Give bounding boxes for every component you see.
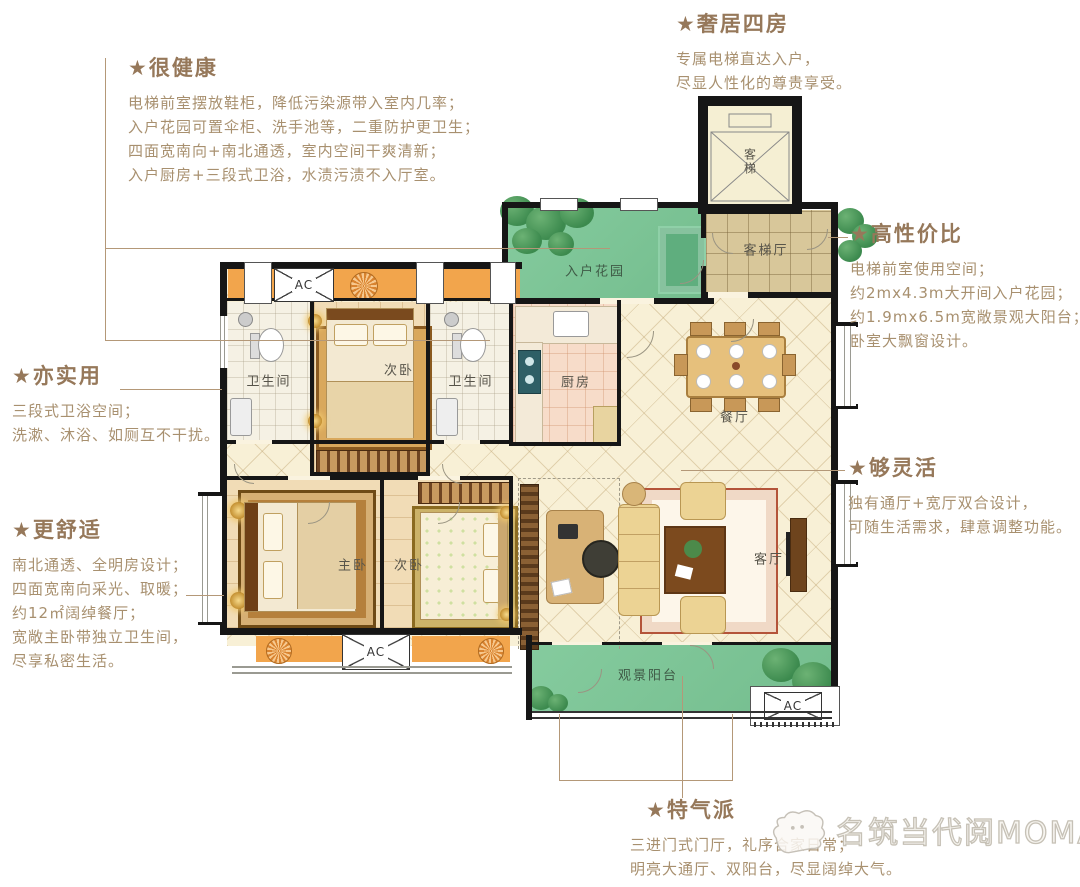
desk-chair: [582, 540, 620, 578]
dining-table: [686, 336, 786, 398]
leader-line: [828, 237, 848, 238]
laptop-icon: [558, 524, 578, 539]
wall-segment: [526, 635, 532, 720]
room-label-bathroom-ne: 卫生间: [448, 371, 493, 390]
room-label-balcony: 观景阳台: [618, 665, 678, 684]
annotation-flexible: ★够灵活 独有通厅+宽厅双合设计， 可随生活需求，肆意调整功能。: [848, 452, 1072, 539]
leader-line: [105, 58, 106, 340]
tv-icon: [786, 532, 790, 576]
ac-label: AC: [292, 278, 316, 292]
annotation-title: ★更舒适: [12, 514, 188, 544]
toilet-icon: [250, 328, 282, 362]
door-opening: [600, 298, 654, 304]
chair: [758, 322, 780, 336]
wall-segment: [509, 476, 513, 630]
sink-icon: [230, 398, 252, 436]
wall-segment: [509, 300, 513, 446]
door-opening: [662, 642, 712, 645]
room-label-living: 客厅: [754, 549, 784, 568]
wardrobe: [418, 482, 512, 504]
sofa: [618, 504, 660, 616]
window: [540, 198, 578, 211]
fan-decor-icon: [478, 638, 504, 664]
room-label-master-bedroom: 主卧: [338, 555, 368, 574]
stove-icon: [518, 350, 541, 394]
window: [620, 198, 658, 211]
floorplan-page: 客梯 AC AC AC 卫生间 次卧 卫生间 厨房 入户花园 客梯厅 餐厅 主卧: [0, 0, 1080, 887]
annotation-title: ★够灵活: [848, 452, 1072, 482]
chair: [758, 398, 780, 412]
wall-segment: [502, 202, 714, 208]
room-label-elevator: 客梯: [742, 148, 759, 176]
leader-line: [105, 340, 490, 341]
room-label-bedroom-south: 次卧: [394, 555, 424, 574]
ac-unit: AC: [274, 268, 334, 302]
armchair: [680, 596, 726, 634]
plant-icon: [548, 232, 574, 256]
plant-icon: [548, 694, 568, 712]
wall-segment: [617, 300, 621, 446]
toilet-icon: [452, 328, 484, 362]
chair: [782, 354, 796, 376]
annotation-comfortable: ★更舒适 南北通透、全明房设计； 四面宽南向采光、取暖； 约12㎡阔绰餐厅； 宽…: [12, 514, 188, 673]
ledge-line: [232, 666, 512, 668]
wall-segment: [310, 300, 314, 442]
wall-segment: [831, 202, 838, 722]
brand-watermark: 名筑当代阅MOMA: [836, 808, 1080, 852]
wall-segment: [509, 442, 621, 446]
annotation-title: ★高性价比: [850, 218, 1080, 248]
door-opening: [236, 440, 272, 444]
wall-segment: [502, 202, 508, 268]
bay-window-master: [198, 496, 222, 622]
ledge-line: [232, 672, 512, 674]
bookshelf: [520, 484, 539, 650]
door-opening: [708, 292, 748, 298]
round-side-table: [622, 482, 646, 506]
ac-label: AC: [364, 645, 388, 659]
ac-unit: AC: [764, 692, 822, 720]
room-label-entry-garden: 入户花园: [565, 261, 625, 280]
fan-decor-icon: [350, 272, 378, 300]
chair: [674, 354, 688, 376]
wall-segment: [426, 300, 430, 442]
study-furniture: [520, 482, 620, 650]
room-label-bedroom-north: 次卧: [384, 360, 414, 379]
wall-segment: [426, 440, 430, 476]
wall-segment: [310, 440, 314, 476]
bed: [420, 512, 508, 620]
leader-line: [681, 470, 845, 471]
door-opening: [552, 642, 602, 645]
leader-line: [732, 714, 733, 780]
leader-line: [559, 714, 560, 780]
window: [416, 262, 444, 304]
shower-icon: [238, 312, 253, 327]
annotation-title: ★亦实用: [12, 360, 220, 390]
leader-line: [682, 676, 683, 798]
leader-line: [105, 248, 610, 249]
kitchen-sink-icon: [553, 311, 589, 337]
room-label-elevator-hall: 客梯厅: [743, 240, 788, 259]
fan-decor-icon: [266, 638, 292, 664]
shower-icon: [444, 312, 459, 327]
leader-line: [559, 780, 733, 781]
annotation-cost-effective: ★高性价比 电梯前室使用空间； 约2mx4.3m大开间入户花园； 约1.9mx6…: [850, 218, 1080, 353]
chair: [690, 322, 712, 336]
annotation-luxury-four-rooms: ★奢居四房 专属电梯直达入户， 尽显人性化的尊贵享受。: [676, 8, 852, 95]
ac-unit: AC: [342, 634, 410, 670]
chair: [690, 398, 712, 412]
bedroom-north-furniture: [314, 302, 428, 478]
cabinet: [593, 406, 618, 444]
annotation-title: ★很健康: [128, 52, 480, 82]
room-label-dining: 餐厅: [720, 407, 750, 426]
window: [490, 262, 516, 304]
wall-segment: [380, 476, 384, 630]
ac-grille: [754, 722, 834, 727]
annotation-title: ★奢居四房: [676, 8, 852, 38]
annotation-practical: ★亦实用 三段式卫浴空间； 洗漱、沐浴、如厕互不干扰。: [12, 360, 220, 447]
living-furniture: [618, 484, 818, 636]
armchair: [680, 482, 726, 520]
sink-icon: [436, 398, 458, 436]
coffee-table: [664, 526, 726, 594]
room-label-bathroom-nw: 卫生间: [246, 371, 291, 390]
leader-line: [186, 595, 224, 596]
wall-segment: [701, 210, 706, 238]
dove-logo-icon: [768, 806, 830, 858]
door-opening: [444, 440, 480, 444]
plant-icon: [512, 228, 542, 254]
door-opening: [288, 476, 330, 480]
room-label-kitchen: 厨房: [561, 372, 591, 391]
tv-console: [790, 518, 807, 592]
annotation-healthy: ★很健康 电梯前室摆放鞋柜，降低污染源带入室内几率； 入户花园可置伞柜、洗手池等…: [128, 52, 480, 187]
window: [244, 262, 272, 304]
